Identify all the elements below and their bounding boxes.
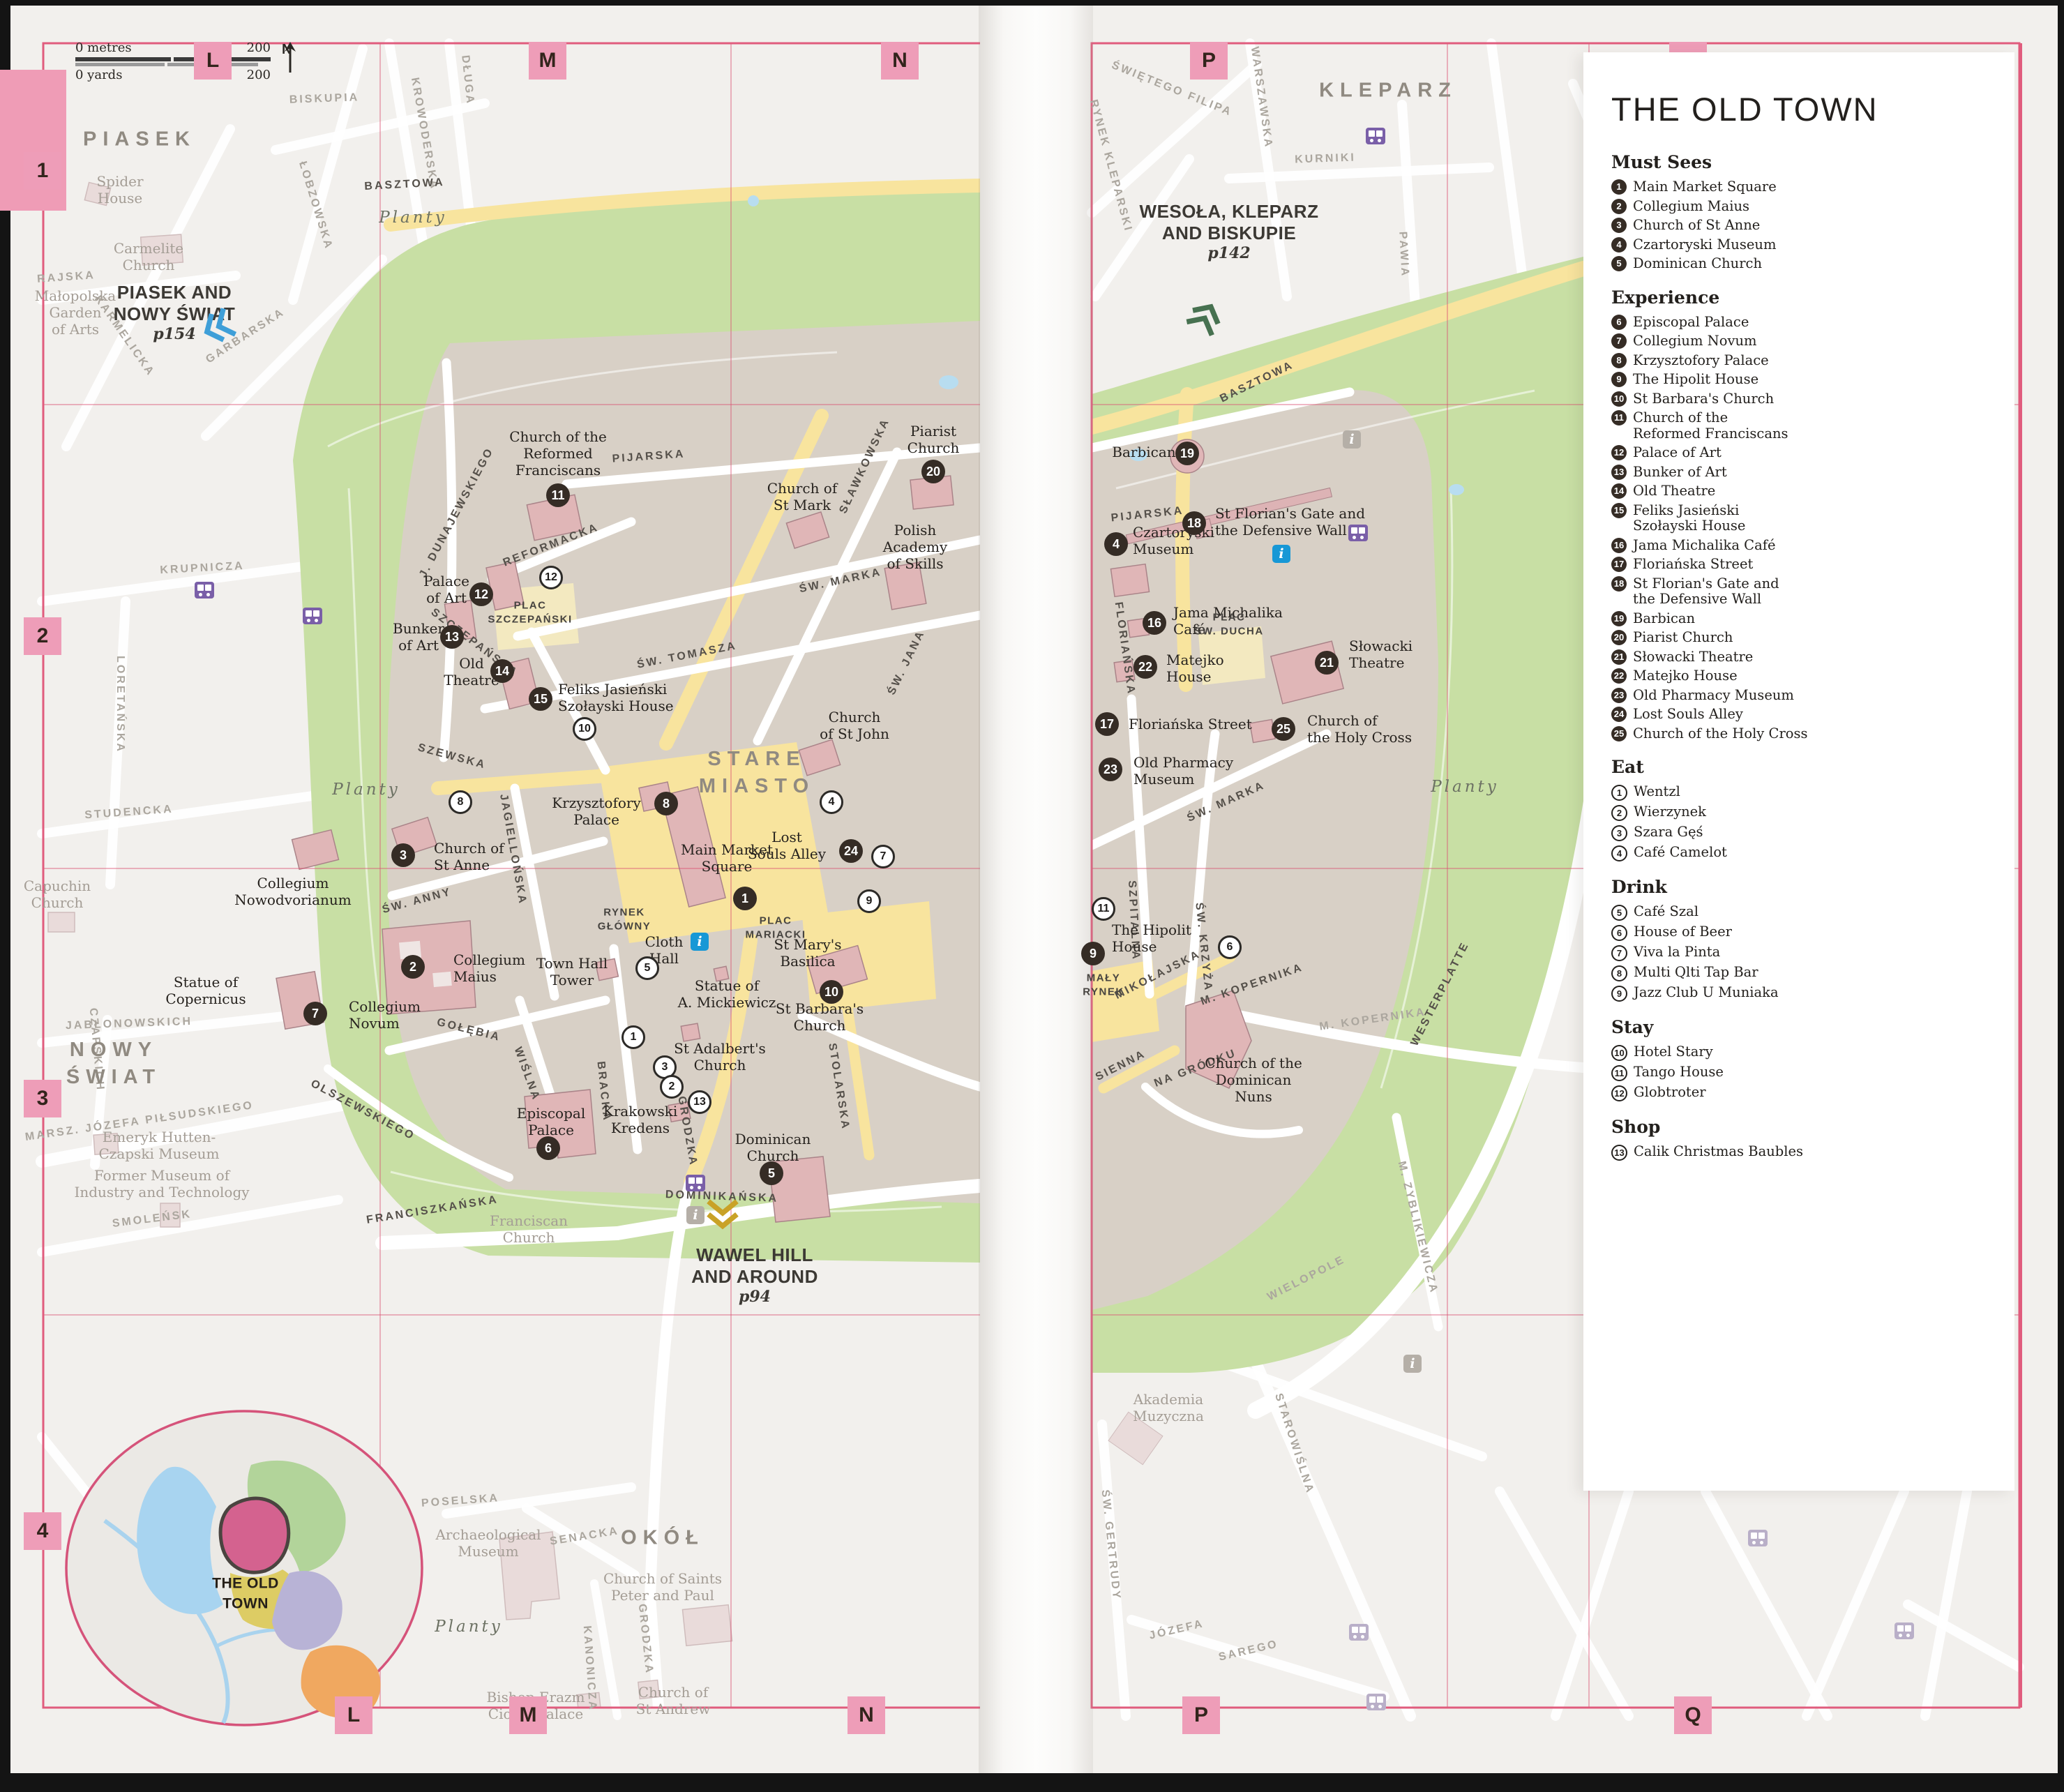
- tram-stop-icon: [1366, 128, 1385, 144]
- map-label: Emeryk Hutten- Czapski Museum: [98, 1129, 219, 1162]
- legend-item: 4Café Camelot: [1611, 845, 1994, 861]
- tram-stop-icon: [303, 608, 322, 624]
- scale-metres-zero: 0 metres: [75, 40, 132, 55]
- inset-label-line1: THE OLD: [212, 1576, 279, 1592]
- legend-item-label: Globtroter: [1634, 1085, 1706, 1101]
- map-label: Palace of Art: [423, 573, 469, 606]
- legend-item-label: Palace of Art: [1633, 445, 1722, 461]
- map-label: OKÓŁ: [621, 1524, 705, 1551]
- sight-marker: 7: [303, 1002, 327, 1025]
- map-spread: 0 metres200 0 yards200 N THE OLDTOWN BIS…: [0, 0, 2064, 1792]
- sight-marker: 13: [1611, 465, 1627, 480]
- legend-item-label: Viva la Pinta: [1634, 944, 1720, 961]
- scale-bar: 0 metres200 0 yards200: [75, 40, 271, 82]
- map-label: LORETAŃSKA: [114, 656, 126, 753]
- map-label: Bunker of Art: [393, 620, 444, 654]
- scale-bar-metres: [75, 57, 271, 61]
- north-arrow-icon: [282, 42, 299, 74]
- sight-marker: 7: [1611, 333, 1627, 349]
- tram-stop-icon: [1348, 525, 1368, 541]
- sight-marker: 25: [1611, 726, 1627, 741]
- legend-item-label: The Hipolit House: [1633, 372, 1758, 388]
- legend-panel: THE OLD TOWN Must Sees1Main Market Squar…: [1583, 52, 2014, 1491]
- map-label: Town Hall Tower: [536, 955, 608, 988]
- legend-item: 7Collegium Novum: [1611, 333, 1994, 349]
- tourist-info-icon: i: [1343, 430, 1361, 449]
- legend-item: 15Feliks Jasieński Szołayski House: [1611, 503, 1994, 534]
- sight-marker: 20: [1611, 630, 1627, 645]
- legend-item: 20Piarist Church: [1611, 630, 1994, 646]
- legend-item: 18St Florian's Gate and the Defensive Wa…: [1611, 576, 1994, 608]
- map-label: PLAC ŚW. DUCHA: [1194, 611, 1263, 638]
- venue-marker: 10: [573, 717, 596, 741]
- sight-marker: 6: [536, 1136, 560, 1160]
- map-label: Matejko House: [1166, 652, 1224, 685]
- grid-tab-M: M: [529, 42, 566, 80]
- legend-item: 6Episcopal Palace: [1611, 315, 1994, 331]
- map-label: Lost Souls Alley: [748, 829, 826, 862]
- legend-item-label: Barbican: [1633, 611, 1695, 627]
- sight-marker: 16: [1611, 538, 1627, 553]
- sight-marker: 9: [1081, 942, 1105, 965]
- tram-stop-icon: [1366, 1694, 1386, 1710]
- tram-stop-icon: [195, 582, 214, 598]
- venue-marker: 2: [660, 1075, 684, 1099]
- map-label: Statue of Copernicus: [165, 974, 246, 1007]
- legend-item-label: Jazz Club U Muniaka: [1634, 985, 1779, 1001]
- map-label: KURNIKI: [1295, 151, 1356, 166]
- legend-item: 24Lost Souls Alley: [1611, 707, 1994, 723]
- legend-item: 4Czartoryski Museum: [1611, 237, 1994, 253]
- sight-marker: 5: [1611, 256, 1627, 271]
- legend-item-label: Floriańska Street: [1633, 557, 1753, 573]
- legend-item: 23Old Pharmacy Museum: [1611, 688, 1994, 704]
- sight-marker: 12: [469, 582, 493, 606]
- map-label: Statue of A. Mickiewicz: [678, 977, 776, 1011]
- map-label: Spider House: [96, 173, 143, 206]
- venue-marker: 5: [1611, 905, 1627, 921]
- legend-item-label: Czartoryski Museum: [1633, 237, 1776, 253]
- sight-marker: 15: [529, 687, 552, 711]
- legend-item: 9Jazz Club U Muniaka: [1611, 985, 1994, 1002]
- sight-marker: 25: [1272, 717, 1295, 741]
- sight-marker: 23: [1099, 758, 1122, 781]
- legend-item: 22Matejko House: [1611, 668, 1994, 684]
- sight-marker: 20: [921, 460, 945, 483]
- grid-tab-P: P: [1182, 1696, 1220, 1734]
- legend-section-title: Must Sees: [1611, 152, 1994, 172]
- venue-marker: 12: [1611, 1085, 1627, 1101]
- sight-marker: 15: [1611, 503, 1627, 518]
- sight-marker: 24: [839, 839, 863, 863]
- tourist-info-icon: i: [1272, 545, 1290, 563]
- grid-tab-M: M: [509, 1696, 547, 1734]
- legend-section-title: Shop: [1611, 1117, 1994, 1137]
- sight-marker: 18: [1182, 511, 1206, 535]
- venue-marker: 2: [1611, 805, 1627, 821]
- grid-tab-Q: Q: [1674, 1696, 1712, 1734]
- tourist-info-icon: i: [691, 933, 709, 951]
- map-label: Planty: [379, 209, 447, 227]
- legend-item: 2Wierzynek: [1611, 804, 1994, 821]
- map-label: Former Museum of Industry and Technology: [74, 1167, 249, 1200]
- map-label: Old Pharmacy Museum: [1133, 754, 1233, 788]
- map-label: St Barbara's Church: [776, 1000, 864, 1034]
- legend-item: 8Krzysztofory Palace: [1611, 353, 1994, 369]
- legend-item-label: Collegium Novum: [1633, 333, 1757, 349]
- legend-item: 21Słowacki Theatre: [1611, 649, 1994, 665]
- sight-marker: 10: [820, 980, 843, 1004]
- sight-marker: 1: [1611, 179, 1627, 195]
- sight-marker: 10: [1611, 391, 1627, 407]
- legend-item: 8Multi Qlti Tap Bar: [1611, 965, 1994, 981]
- legend-item: 11Church of the Reformed Franciscans: [1611, 410, 1994, 442]
- tourist-info-icon: i: [1403, 1355, 1422, 1373]
- legend-item-label: House of Beer: [1634, 924, 1732, 940]
- legend-item-label: Słowacki Theatre: [1633, 649, 1753, 665]
- map-label: Capuchin Church: [24, 878, 91, 911]
- legend-item-label: Dominican Church: [1633, 256, 1762, 272]
- map-label: PIASEK: [83, 126, 196, 153]
- legend-item-label: Episcopal Palace: [1633, 315, 1749, 331]
- sight-marker: 22: [1611, 668, 1627, 684]
- sight-marker: 11: [546, 483, 570, 507]
- venue-marker: 6: [1611, 925, 1627, 941]
- sight-marker: 1: [733, 887, 757, 910]
- legend-item: 16Jama Michalika Café: [1611, 538, 1994, 554]
- legend-item: 10Hotel Stary: [1611, 1044, 1994, 1061]
- venue-marker: 1: [1611, 785, 1627, 801]
- map-label: Krzysztofory Palace: [552, 795, 641, 828]
- tram-stop-icon: [1894, 1622, 1914, 1639]
- map-label: Archaeological Museum: [435, 1526, 541, 1560]
- sight-marker: 3: [391, 843, 415, 867]
- grid-tab-P: P: [1190, 42, 1228, 80]
- map-label: Episcopal Palace: [517, 1105, 585, 1138]
- legend-item-label: Wierzynek: [1634, 804, 1706, 820]
- map-label: Planty: [1431, 778, 1499, 796]
- sight-marker: 4: [1611, 237, 1627, 253]
- inset-locator-map: [66, 1411, 422, 1725]
- map-label: PAWIA: [1396, 231, 1410, 278]
- legend-item-label: Matejko House: [1633, 668, 1738, 684]
- sight-marker: 11: [1611, 410, 1627, 426]
- legend-item-label: Café Szal: [1634, 904, 1698, 920]
- legend-item-label: Feliks Jasieński Szołayski House: [1633, 503, 1745, 534]
- venue-marker: 10: [1611, 1045, 1627, 1061]
- inset-label-line2: TOWN: [223, 1596, 269, 1612]
- sight-marker: 16: [1143, 611, 1166, 635]
- map-label: Church of the Holy Cross: [1307, 712, 1412, 746]
- map-label: Akademia Muzyczna: [1133, 1391, 1204, 1424]
- adjacent-area-name: WAWEL HILL AND AROUND: [691, 1244, 818, 1288]
- legend-item-label: St Florian's Gate and the Defensive Wall: [1633, 576, 1779, 608]
- legend-item-label: Lost Souls Alley: [1633, 707, 1743, 723]
- legend-item: 6House of Beer: [1611, 924, 1994, 941]
- venue-marker: 7: [871, 845, 895, 868]
- sight-marker: 21: [1611, 649, 1627, 665]
- venue-marker: 9: [1611, 986, 1627, 1002]
- inset-label: THE OLDTOWN: [212, 1574, 279, 1615]
- map-label: Planty: [332, 781, 400, 799]
- adjacent-area-name: WESOŁA, KLEPARZ AND BISKUPIE: [1140, 201, 1319, 244]
- map-label: Barbican: [1112, 444, 1175, 460]
- legend-item: 12Globtroter: [1611, 1085, 1994, 1101]
- legend-item-label: Church of the Holy Cross: [1633, 726, 1808, 742]
- page-fold: [979, 6, 1093, 1773]
- venue-marker: 5: [635, 956, 659, 980]
- sight-marker: 6: [1611, 315, 1627, 330]
- legend-item-label: Bunker of Art: [1633, 465, 1727, 481]
- venue-marker: 6: [1218, 935, 1242, 959]
- sight-marker: 9: [1611, 372, 1627, 387]
- legend-item: 5Café Szal: [1611, 904, 1994, 921]
- legend-section-title: Stay: [1611, 1017, 1994, 1037]
- legend-section-title: Eat: [1611, 757, 1994, 777]
- map-label: Church of Saints Peter and Paul: [603, 1570, 722, 1604]
- legend-item: 12Palace of Art: [1611, 445, 1994, 461]
- venue-marker: 9: [857, 889, 881, 913]
- tram-stop-icon: [1349, 1624, 1369, 1641]
- legend-item-label: Hotel Stary: [1634, 1044, 1713, 1060]
- sight-marker: 2: [1611, 199, 1627, 214]
- legend-item-label: Café Camelot: [1634, 845, 1727, 861]
- legend-item-label: Collegium Maius: [1633, 199, 1749, 215]
- map-label: Church of St Anne: [434, 840, 504, 873]
- legend-item-label: Main Market Square: [1633, 179, 1777, 195]
- sight-marker: 12: [1611, 445, 1627, 460]
- grid-tab-L: L: [335, 1696, 372, 1734]
- map-label: Piarist Church: [907, 423, 960, 456]
- grid-tab-2: 2: [24, 617, 61, 655]
- page-title: THE OLD TOWN: [1611, 90, 1994, 128]
- map-right-border: [2020, 43, 2022, 1708]
- legend-item: 10St Barbara's Church: [1611, 391, 1994, 407]
- venue-marker: 13: [688, 1090, 711, 1114]
- legend-item-label: Wentzl: [1634, 784, 1680, 800]
- venue-marker: 3: [1611, 825, 1627, 841]
- legend-item: 9The Hipolit House: [1611, 372, 1994, 388]
- map-label: Church of the Reformed Franciscans: [509, 428, 607, 479]
- sight-marker: 4: [1104, 532, 1128, 556]
- adjacent-area-link: WAWEL HILL AND AROUNDp94: [691, 1244, 818, 1306]
- tram-stop-icon: [686, 1175, 705, 1191]
- legend-item: 13Calik Christmas Baubles: [1611, 1144, 1994, 1161]
- map-label: KLEPARZ: [1319, 77, 1457, 104]
- legend-item-label: Tango House: [1634, 1064, 1724, 1081]
- north-arrow: N: [282, 42, 292, 58]
- venue-marker: 8: [1611, 965, 1627, 981]
- legend-item: 14Old Theatre: [1611, 483, 1994, 499]
- legend-item: 3Church of St Anne: [1611, 218, 1994, 234]
- sight-marker: 17: [1611, 557, 1627, 572]
- map-label: NOWY ŚWIAT: [66, 1037, 161, 1091]
- sight-marker: 19: [1175, 442, 1199, 465]
- venue-marker: 4: [820, 790, 843, 814]
- venue-marker: 13: [1611, 1145, 1627, 1161]
- sight-marker: 22: [1133, 655, 1157, 679]
- sight-marker: 24: [1611, 707, 1627, 722]
- sight-marker: 5: [760, 1161, 783, 1185]
- venue-marker: 4: [1611, 845, 1627, 861]
- map-label: Collegium Maius: [453, 951, 525, 985]
- venue-marker: 11: [1092, 897, 1115, 921]
- sight-marker: 8: [1611, 353, 1627, 368]
- map-label: St Adalbert's Church: [674, 1040, 766, 1074]
- legend-item-label: Church of the Reformed Franciscans: [1633, 410, 1788, 442]
- map-label: Carmelite Church: [114, 240, 183, 273]
- map-label: Małopolska Garden of Arts: [35, 287, 116, 338]
- map-label: Floriańska Street: [1129, 716, 1252, 732]
- map-label: Planty: [435, 1618, 503, 1636]
- map-label: Słowacki Theatre: [1349, 638, 1413, 671]
- legend-section-title: Drink: [1611, 877, 1994, 897]
- legend-sections: Must Sees1Main Market Square2Collegium M…: [1611, 152, 1994, 1161]
- legend-item: 1Main Market Square: [1611, 179, 1994, 195]
- legend-item: 2Collegium Maius: [1611, 199, 1994, 215]
- scale-yards-max: 200: [247, 68, 271, 82]
- adjacent-area-page-ref: p142: [1140, 244, 1319, 262]
- legend-item-label: Church of St Anne: [1633, 218, 1760, 234]
- legend-item: 7Viva la Pinta: [1611, 944, 1994, 961]
- map-label: BISKUPIA: [289, 91, 359, 106]
- venue-marker: 7: [1611, 945, 1627, 961]
- map-label: Church of St Andrew: [636, 1684, 711, 1717]
- tram-stop-icon: [1748, 1530, 1768, 1546]
- legend-section-title: Experience: [1611, 287, 1994, 308]
- map-label: Polish Academy of Skills: [883, 522, 947, 572]
- map-label: Dominican Church: [735, 1131, 811, 1164]
- map-label: Church of St John: [820, 709, 889, 742]
- venue-marker: 1: [622, 1025, 645, 1049]
- legend-item: 19Barbican: [1611, 611, 1994, 627]
- map-label: Church of St Mark: [767, 480, 838, 513]
- map-label: Collegium Nowodvorianum: [234, 875, 351, 908]
- sight-marker: 17: [1095, 712, 1119, 736]
- map-label: Franciscan Church: [490, 1212, 568, 1246]
- venue-marker: 11: [1611, 1065, 1627, 1081]
- legend-item: 3Szara Gęś: [1611, 825, 1994, 841]
- legend-item: 17Floriańska Street: [1611, 557, 1994, 573]
- scale-metres-max: 200: [247, 40, 271, 55]
- map-label: PLAC SZCZEPAŃSKI: [488, 599, 572, 626]
- map-label: Collegium Novum: [349, 998, 421, 1032]
- sight-marker: 3: [1611, 218, 1627, 233]
- grid-tab-1: 1: [24, 152, 61, 190]
- map-label: Krakowski Kredens: [603, 1103, 677, 1136]
- sight-marker: 14: [1611, 483, 1627, 499]
- legend-item-label: Krzysztofory Palace: [1633, 353, 1769, 369]
- venue-marker: 8: [449, 790, 472, 814]
- legend-item-label: Calik Christmas Baubles: [1634, 1144, 1803, 1160]
- adjacent-area-page-ref: p94: [691, 1288, 818, 1306]
- map-label: St Mary's Basilica: [774, 936, 841, 970]
- grid-tab-4: 4: [24, 1512, 61, 1550]
- grid-tab-N: N: [881, 42, 919, 80]
- sight-marker: 14: [490, 659, 514, 683]
- legend-item: 5Dominican Church: [1611, 256, 1994, 272]
- legend-item-label: Jama Michalika Café: [1633, 538, 1775, 554]
- map-label: MAŁY RYNEK: [1083, 972, 1124, 999]
- sight-marker: 2: [401, 955, 425, 979]
- legend-item-label: Multi Qlti Tap Bar: [1634, 965, 1758, 981]
- sight-marker: 18: [1611, 576, 1627, 592]
- legend-item-label: Old Pharmacy Museum: [1633, 688, 1794, 704]
- grid-tab-L: L: [194, 42, 232, 80]
- map-label: St Florian's Gate and the Defensive Wall: [1215, 505, 1365, 539]
- legend-item-label: St Barbara's Church: [1633, 391, 1774, 407]
- map-label: RYNEK GŁÓWNY: [598, 906, 651, 933]
- legend-item: 1Wentzl: [1611, 784, 1994, 801]
- scale-yards-zero: 0 yards: [75, 68, 122, 82]
- sight-marker: 13: [440, 625, 464, 649]
- grid-tab-N: N: [848, 1696, 885, 1734]
- tourist-info-icon: i: [686, 1206, 705, 1224]
- venue-marker: 12: [539, 566, 563, 589]
- map-label: Feliks Jasieński Szołayski House: [558, 681, 674, 714]
- legend-item-label: Szara Gęś: [1634, 825, 1703, 841]
- map-label: Church of the Dominican Nuns: [1205, 1055, 1302, 1105]
- legend-item: 25Church of the Holy Cross: [1611, 726, 1994, 742]
- sight-marker: 23: [1611, 688, 1627, 703]
- sight-marker: 21: [1315, 651, 1339, 675]
- legend-item: 11Tango House: [1611, 1064, 1994, 1081]
- adjacent-area-link: WESOŁA, KLEPARZ AND BISKUPIEp142: [1140, 201, 1319, 262]
- map-label: The Hipolit House: [1112, 921, 1191, 955]
- map-label: STARE MIASTO: [699, 746, 815, 800]
- sight-marker: 8: [654, 792, 678, 815]
- legend-item-label: Piarist Church: [1633, 630, 1733, 646]
- legend-item: 13Bunker of Art: [1611, 465, 1994, 481]
- legend-item-label: Old Theatre: [1633, 483, 1715, 499]
- grid-tab-3: 3: [24, 1080, 61, 1117]
- sight-marker: 19: [1611, 611, 1627, 626]
